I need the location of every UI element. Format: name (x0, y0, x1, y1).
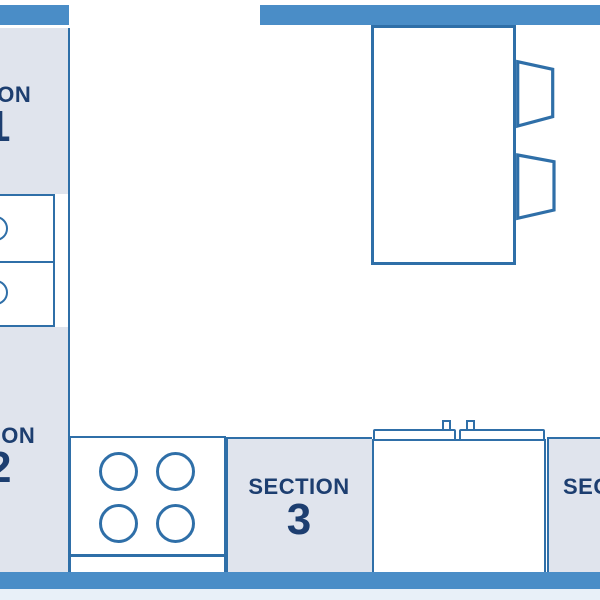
section-3-number: 3 (226, 497, 372, 543)
stove-front-line (69, 554, 226, 557)
wall-bottom (0, 572, 600, 589)
burner-bottom-right (156, 504, 195, 543)
section-2-number: 2 (0, 445, 11, 491)
basin-divider-line (0, 261, 53, 264)
section-4-label: SECTION (563, 475, 600, 499)
sink-cabinet (372, 439, 546, 573)
kitchen-floor-plan: SECTION 1 SECTION 2 SECTION 3 SECTION 4 (0, 0, 600, 600)
section-4-number: 4 (563, 497, 600, 543)
wall-top-left (0, 5, 69, 25)
wall-top-right (260, 5, 600, 25)
island-chairs (505, 45, 565, 230)
burner-top-right (156, 452, 195, 491)
kitchen-island (371, 25, 516, 265)
chair-bottom (518, 155, 554, 218)
floor-edge-strip (0, 589, 600, 600)
stove (69, 436, 226, 572)
double-basin-unit (0, 194, 55, 327)
burner-top-left (99, 452, 138, 491)
burner-bottom-left (99, 504, 138, 543)
section-1-number: 1 (0, 104, 10, 150)
chair-top (518, 62, 553, 126)
